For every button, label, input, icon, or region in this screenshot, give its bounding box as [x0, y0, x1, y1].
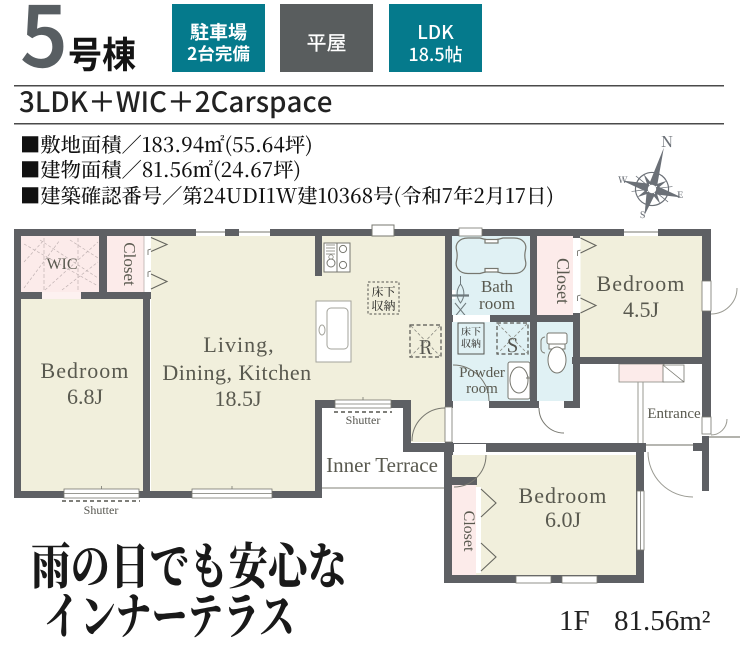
svg-text:Dining, Kitchen: Dining, Kitchen — [162, 360, 311, 385]
svg-text:Inner Terrace: Inner Terrace — [326, 453, 438, 477]
svg-text:Closet: Closet — [120, 242, 139, 286]
svg-text:Shutter: Shutter — [346, 413, 381, 427]
svg-text:6.0J: 6.0J — [545, 507, 582, 532]
svg-text:WIC: WIC — [46, 256, 77, 273]
svg-text:Powder: Powder — [459, 365, 505, 381]
svg-text:room: room — [466, 381, 498, 397]
svg-text:18.5J: 18.5J — [214, 386, 262, 411]
svg-text:room: room — [479, 294, 515, 313]
svg-text:1F: 1F — [559, 605, 590, 637]
svg-text:Shutter: Shutter — [84, 503, 119, 517]
svg-text:Living,: Living, — [203, 332, 274, 357]
svg-text:Closet: Closet — [553, 258, 573, 304]
svg-text:4.5J: 4.5J — [623, 297, 660, 322]
svg-text:Entrance: Entrance — [647, 406, 701, 422]
svg-text:Bedroom: Bedroom — [597, 271, 686, 296]
svg-text:Bedroom: Bedroom — [41, 358, 130, 383]
svg-text:Bedroom: Bedroom — [519, 483, 608, 508]
svg-text:81.56m²: 81.56m² — [614, 605, 711, 637]
svg-text:Closet: Closet — [460, 511, 477, 552]
svg-text:6.8J: 6.8J — [67, 384, 104, 409]
